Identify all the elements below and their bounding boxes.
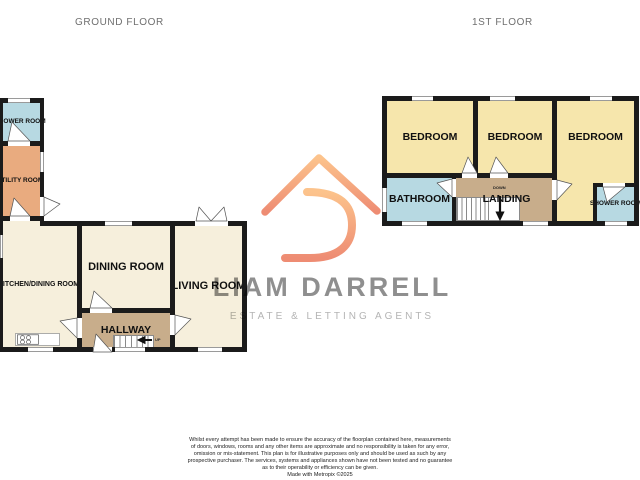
disclaimer: Whilst every attempt has been made to en… xyxy=(0,437,640,479)
disclaimer-line: as to their operability or efficiency ca… xyxy=(0,465,640,472)
disclaimer-line: omission or mis-statement. This plan is … xyxy=(0,451,640,458)
floorplan-page: GROUND FLOOR 1ST FLOOR SHOWER ROOM UTILI… xyxy=(0,0,640,480)
door-opening xyxy=(10,216,30,221)
stairs-up-label: UP xyxy=(155,338,161,342)
door-opening xyxy=(490,173,508,178)
front-door-opening xyxy=(93,347,112,352)
door-opening xyxy=(8,141,30,146)
window xyxy=(605,221,627,226)
wall xyxy=(473,101,478,178)
room-living: LIVING ROOM xyxy=(175,226,242,347)
disclaimer-line: prospective purchaser. The services, sys… xyxy=(0,458,640,465)
door-opening xyxy=(77,318,82,338)
door-opening xyxy=(552,180,557,200)
room-shower-ground: SHOWER ROOM xyxy=(0,103,40,141)
door-opening xyxy=(452,179,456,197)
wall xyxy=(634,96,639,226)
window xyxy=(523,221,548,226)
door-opening xyxy=(40,197,44,216)
room-label: HALLWAY xyxy=(101,325,151,336)
french-door-opening xyxy=(195,221,228,226)
room-label: LANDING xyxy=(483,194,531,205)
room-label: BEDROOM xyxy=(568,132,623,143)
window xyxy=(0,235,3,258)
disclaimer-line: of doors, windows, rooms and any other i… xyxy=(0,444,640,451)
window xyxy=(28,347,53,352)
room-label: BEDROOM xyxy=(488,132,543,143)
room-bathroom: BATHROOM xyxy=(387,178,452,221)
first-floor-title: 1ST FLOOR xyxy=(472,17,533,28)
brand-logo-house-icon xyxy=(253,146,385,266)
door-opening xyxy=(90,308,112,313)
window xyxy=(40,152,44,172)
room-label: LIVING ROOM xyxy=(172,281,246,292)
wall xyxy=(552,101,557,221)
door-opening xyxy=(462,173,477,178)
room-label: BEDROOM xyxy=(403,132,458,143)
wall xyxy=(242,221,247,352)
room-label: SHOWER ROOM xyxy=(590,201,640,208)
window xyxy=(590,96,612,101)
room-dining: DINING ROOM xyxy=(82,226,170,308)
window xyxy=(8,98,30,103)
room-kitchen-dining: KITCHEN/DINING ROOM xyxy=(0,221,77,347)
window xyxy=(115,347,145,352)
room-label: UTILITY ROOM xyxy=(0,178,43,185)
door-opening xyxy=(170,315,175,335)
room-label: SHOWER ROOM xyxy=(0,119,46,126)
wall xyxy=(593,183,597,221)
room-label: DINING ROOM xyxy=(88,262,164,273)
stairs-down-label: DOWN xyxy=(493,186,506,190)
disclaimer-line: Whilst every attempt has been made to en… xyxy=(0,437,640,444)
room-label: BATHROOM xyxy=(389,194,450,205)
window xyxy=(198,347,222,352)
door-swing xyxy=(44,197,60,216)
room-bedroom-middle: BEDROOM xyxy=(478,101,552,173)
window xyxy=(490,96,515,101)
ground-floor-title: GROUND FLOOR xyxy=(75,17,164,28)
room-label: KITCHEN/DINING ROOM xyxy=(0,281,79,288)
room-bedroom-left: BEDROOM xyxy=(387,101,473,173)
french-door-swing xyxy=(196,207,211,221)
room-utility: UTILITY ROOM xyxy=(0,146,40,216)
door-opening xyxy=(603,183,625,187)
made-with-line: Made with Metropix ©2025 xyxy=(0,472,640,479)
window xyxy=(412,96,433,101)
window xyxy=(105,221,132,226)
window xyxy=(382,188,387,212)
brand-name: LIAM DARRELL xyxy=(212,272,452,303)
brand-tagline: ESTATE & LETTING AGENTS xyxy=(212,311,452,322)
room-shower-first: SHOWER ROOM xyxy=(597,187,634,221)
window xyxy=(402,221,427,226)
wall xyxy=(0,98,3,352)
french-door-swing xyxy=(211,207,227,221)
